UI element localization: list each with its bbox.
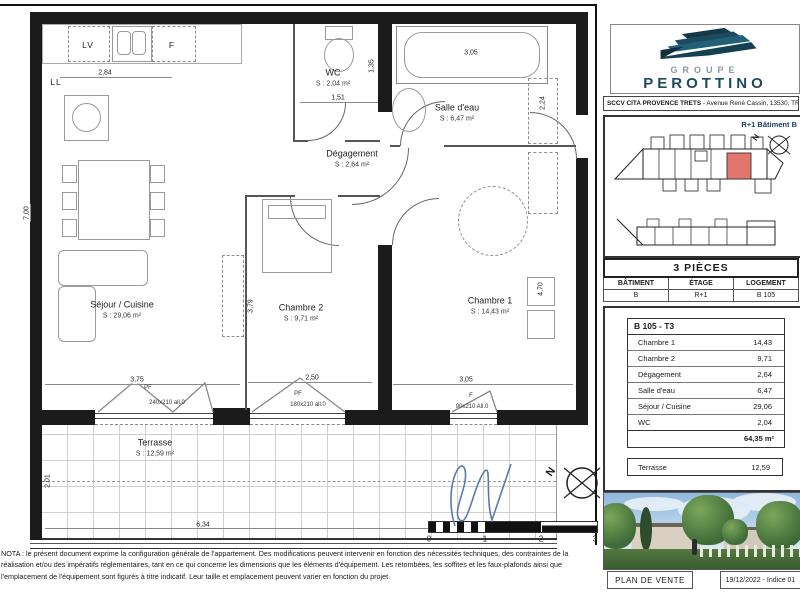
residence-photo (603, 492, 800, 570)
chair (150, 192, 165, 210)
doc-type: PLAN DE VENTE (615, 576, 685, 585)
scale-tick-0: 0 (425, 535, 433, 544)
photo-cloud (624, 497, 684, 511)
room-label-salle-eau: Salle d'eau S : 6,47 m² (435, 103, 479, 124)
scale-tick-3: 3 (591, 535, 599, 544)
terrace-label: Terrasse (638, 463, 667, 472)
window-pf180-dash (250, 424, 345, 425)
chair (150, 219, 165, 237)
sofa (58, 250, 148, 286)
dim-kitchen-w: 2,84 (96, 70, 114, 77)
window-pf180-tag: PF (294, 391, 302, 397)
pieces-header: 3 PIÈCES (603, 258, 799, 278)
fridge-label: F (169, 40, 175, 50)
plan-de-vente-page: LV F LL Séjour / Cuisine S : 29,06 m² WC… (0, 0, 800, 600)
terrace-row: Terrasse12,59 (627, 458, 783, 476)
photo-person (692, 539, 697, 555)
photo-tree (756, 501, 800, 549)
keyplan-drawing (607, 131, 799, 251)
nota-text: NOTA : le présent document exprime la co… (1, 548, 597, 582)
pieces-col-logement: LOGEMENT (734, 278, 799, 290)
wall-right-upper (576, 12, 588, 115)
photo-tree (603, 503, 636, 549)
address-bar: SCCV CITA PROVENCE TRETS - Avenue René C… (603, 96, 799, 111)
scale-tick-1: 1 (481, 535, 489, 544)
window-f90-size: 90x210 All.0 (456, 404, 489, 410)
unit-row: Chambre 29,71 (628, 351, 784, 367)
window-pf180-b (250, 418, 345, 419)
logo-group-text: GROUPE (611, 65, 799, 75)
window-f90-tag: F (469, 393, 473, 399)
wall-bottom-1 (42, 410, 95, 425)
dim-sejour-h: 7,00 (24, 204, 31, 222)
unit-areas-box: B 105 - T3 Chambre 114,43 Chambre 29,71 … (603, 306, 800, 492)
chair (150, 165, 165, 183)
dim-ch2-w: 2,50 (303, 375, 321, 382)
dim-ch1-h: 4,70 (538, 280, 545, 298)
keyplan-box: R+1 Bâtiment B (603, 115, 800, 258)
wall-wc-bath (378, 24, 392, 112)
unit-row: Dégagement2,64 (628, 367, 784, 383)
logo-roof-icon (645, 27, 765, 59)
unit-row: WC2,04 (628, 415, 784, 430)
dim-ch2-h: 3,79 (248, 297, 255, 315)
room-label-terrasse: Terrasse S : 12,59 m² (136, 438, 174, 459)
unit-total-row: 64,35 m² (628, 430, 784, 447)
wall-bottom-2 (345, 410, 450, 425)
wall-wc-bottom-b (345, 140, 380, 142)
wall-wc-left (293, 24, 295, 142)
logo-name-text: PEROTTINO (611, 75, 799, 92)
kitchen-sink-basin2 (132, 31, 146, 55)
window-pf180 (250, 413, 345, 414)
unit-total: 64,35 m² (744, 434, 774, 443)
dim-terrasse-w: 6,34 (194, 522, 212, 529)
dining-table (78, 160, 150, 240)
page-top-edge (0, 4, 597, 6)
chambre1-shelf-2 (527, 310, 555, 339)
dim-line (60, 77, 172, 78)
pieces-table: 3 PIÈCES BÂTIMENT ÉTAGE LOGEMENT B R+1 B… (603, 258, 799, 302)
wall-left (30, 12, 42, 540)
pieces-val-batiment: B (603, 290, 669, 302)
unit-row: Chambre 114,43 (628, 335, 784, 351)
pieces-col-etage: ÉTAGE (669, 278, 734, 290)
window-pf240-dash (95, 424, 213, 425)
dim-wc-h: 1,35 (369, 57, 376, 75)
address-company: SCCV CITA PROVENCE TRETS (607, 100, 701, 107)
window-f90-b (450, 418, 497, 419)
unit-areas-table: B 105 - T3 Chambre 114,43 Chambre 29,71 … (627, 318, 785, 448)
wall-ch2-top-a (245, 195, 295, 197)
wall-bath-bottom-a (390, 145, 400, 147)
window-pf240 (95, 413, 213, 414)
dim-line (45, 384, 240, 385)
wall-bottom-pier (213, 408, 250, 425)
dim-closet-h: 2,24 (540, 94, 547, 112)
wall-right-lower (576, 158, 588, 425)
room-label-wc: WC S : 2,04 m² (316, 68, 350, 89)
washing-machine-drum (72, 103, 101, 132)
dim-wc-w: 1,51 (329, 95, 347, 102)
window-pf180-size: 180x210 all.0 (290, 402, 326, 408)
unit-row: Salle d'eau6,47 (628, 383, 784, 399)
doc-date-box: 19/12/2022 - Indice 01 (720, 571, 800, 589)
pieces-val-logement: B 105 (734, 290, 799, 302)
photo-tree (722, 519, 748, 545)
dim-line (393, 384, 573, 385)
window-pf240-size: 240x210 all.0 (149, 400, 185, 406)
unit-header: B 105 - T3 (628, 319, 784, 335)
chair (62, 192, 77, 210)
dim-sejour-w: 3,75 (128, 377, 146, 384)
dim-bath-w: 3,05 (462, 50, 480, 57)
north-compass (560, 462, 602, 504)
pen-scribble (435, 450, 545, 532)
photo-cypress (640, 507, 652, 551)
terrace-railing-line (30, 543, 557, 544)
logo-box: GROUPE PEROTTINO (610, 24, 800, 94)
door-arc-chambre1 (392, 198, 439, 245)
chambre1-round-item (458, 186, 528, 256)
doc-date: 19/12/2022 - Indice 01 (726, 577, 796, 584)
pieces-val-etage: R+1 (669, 290, 734, 302)
wall-bedrooms (378, 245, 392, 410)
room-label-chambre1: Chambre 1 S : 14,43 m² (468, 296, 513, 317)
washbasin (392, 88, 426, 132)
room-label-chambre2: Chambre 2 S : 9,71 m² (279, 303, 324, 324)
wall-top (30, 12, 588, 24)
entry-closet-2 (528, 152, 558, 214)
keyplan-label: R+1 Bâtiment B (741, 120, 797, 129)
window-f90 (450, 413, 497, 414)
doc-type-box: PLAN DE VENTE (607, 571, 693, 589)
kitchen-sink-basin (117, 31, 131, 55)
door-arc-wc (308, 103, 346, 141)
window-pf240-b (95, 418, 213, 419)
chair (62, 219, 77, 237)
dim-terrasse-h: 2,01 (45, 472, 52, 490)
dim-line (300, 102, 378, 103)
dishwasher-label: LV (82, 40, 94, 50)
photo-fence (700, 545, 800, 557)
pieces-col-batiment: BÂTIMENT (603, 278, 669, 290)
scale-seg-half (541, 522, 597, 532)
room-label-sejour: Séjour / Cuisine S : 29,06 m² (90, 300, 154, 321)
dim-line (248, 382, 372, 383)
washer-label: LL (50, 77, 61, 87)
unit-row: Séjour / Cuisine29,06 (628, 399, 784, 415)
bed-chambre2-pillow (268, 205, 326, 219)
room-label-degagement: Dégagement S : 2,64 m² (326, 149, 378, 170)
wall-bottom-3 (497, 410, 576, 425)
address-street: - Avenue René Cassin, 13530, TRETS (701, 100, 799, 107)
scale-tick-2: 2 (537, 535, 545, 544)
window-f90-dash (450, 424, 497, 425)
chair (62, 165, 77, 183)
dim-ch1-w: 3,05 (457, 377, 475, 384)
terrace-value: 12,59 (751, 463, 770, 472)
tv-cabinet (222, 255, 244, 337)
window-pf240-tag: PF (144, 385, 152, 391)
wall-wc-bottom-a (293, 140, 308, 142)
